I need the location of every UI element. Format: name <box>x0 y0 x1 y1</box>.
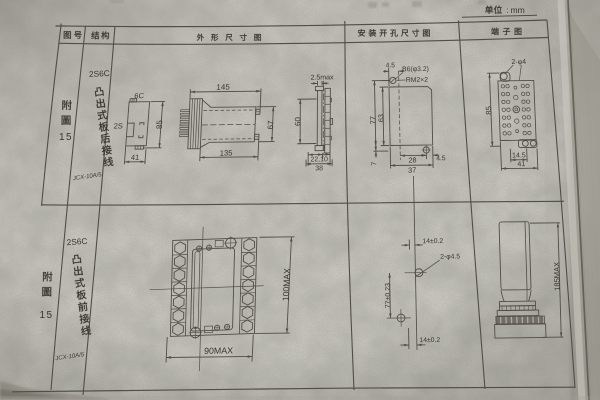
svg-text:85: 85 <box>484 105 493 114</box>
svg-text:41: 41 <box>131 153 140 162</box>
svg-text:85: 85 <box>155 120 165 130</box>
svg-text:4.5: 4.5 <box>436 155 446 162</box>
svg-text:145: 145 <box>216 83 230 92</box>
svg-text:mm: mm <box>511 5 525 15</box>
svg-text:6C: 6C <box>134 91 145 100</box>
svg-text:4.5: 4.5 <box>385 62 395 69</box>
svg-text::: : <box>506 6 508 15</box>
svg-text:7: 7 <box>371 162 378 166</box>
svg-text:22,10: 22,10 <box>310 156 328 163</box>
svg-text:2S6C: 2S6C <box>89 68 110 79</box>
svg-text:135: 135 <box>220 148 233 157</box>
svg-text:RM2×2: RM2×2 <box>406 77 428 84</box>
svg-text:14.5: 14.5 <box>512 152 526 159</box>
svg-text:2-φ4: 2-φ4 <box>511 59 526 66</box>
svg-text:60: 60 <box>293 116 302 126</box>
svg-text:2S: 2S <box>113 121 123 130</box>
svg-text:63: 63 <box>376 114 385 122</box>
svg-text:14±0.2: 14±0.2 <box>422 238 443 245</box>
svg-text:28: 28 <box>408 155 416 164</box>
svg-text:15: 15 <box>59 132 73 143</box>
svg-text:2S6C: 2S6C <box>66 236 87 247</box>
svg-text:38: 38 <box>315 165 323 172</box>
svg-text:B6(φ3.2): B6(φ3.2) <box>402 66 429 73</box>
svg-text:37: 37 <box>408 165 416 174</box>
svg-text:185MAX: 185MAX <box>552 262 562 291</box>
svg-text:2-φ4.5: 2-φ4.5 <box>440 253 460 260</box>
svg-text:90MAX: 90MAX <box>204 346 233 356</box>
svg-text:67: 67 <box>266 120 275 130</box>
svg-text:14±0.2: 14±0.2 <box>419 337 440 344</box>
svg-text:77±0.23: 77±0.23 <box>385 283 393 308</box>
svg-text:41: 41 <box>517 161 525 168</box>
svg-text:2.5max: 2.5max <box>311 74 334 81</box>
svg-text:15: 15 <box>39 310 53 321</box>
svg-text:100MAX: 100MAX <box>281 268 293 301</box>
